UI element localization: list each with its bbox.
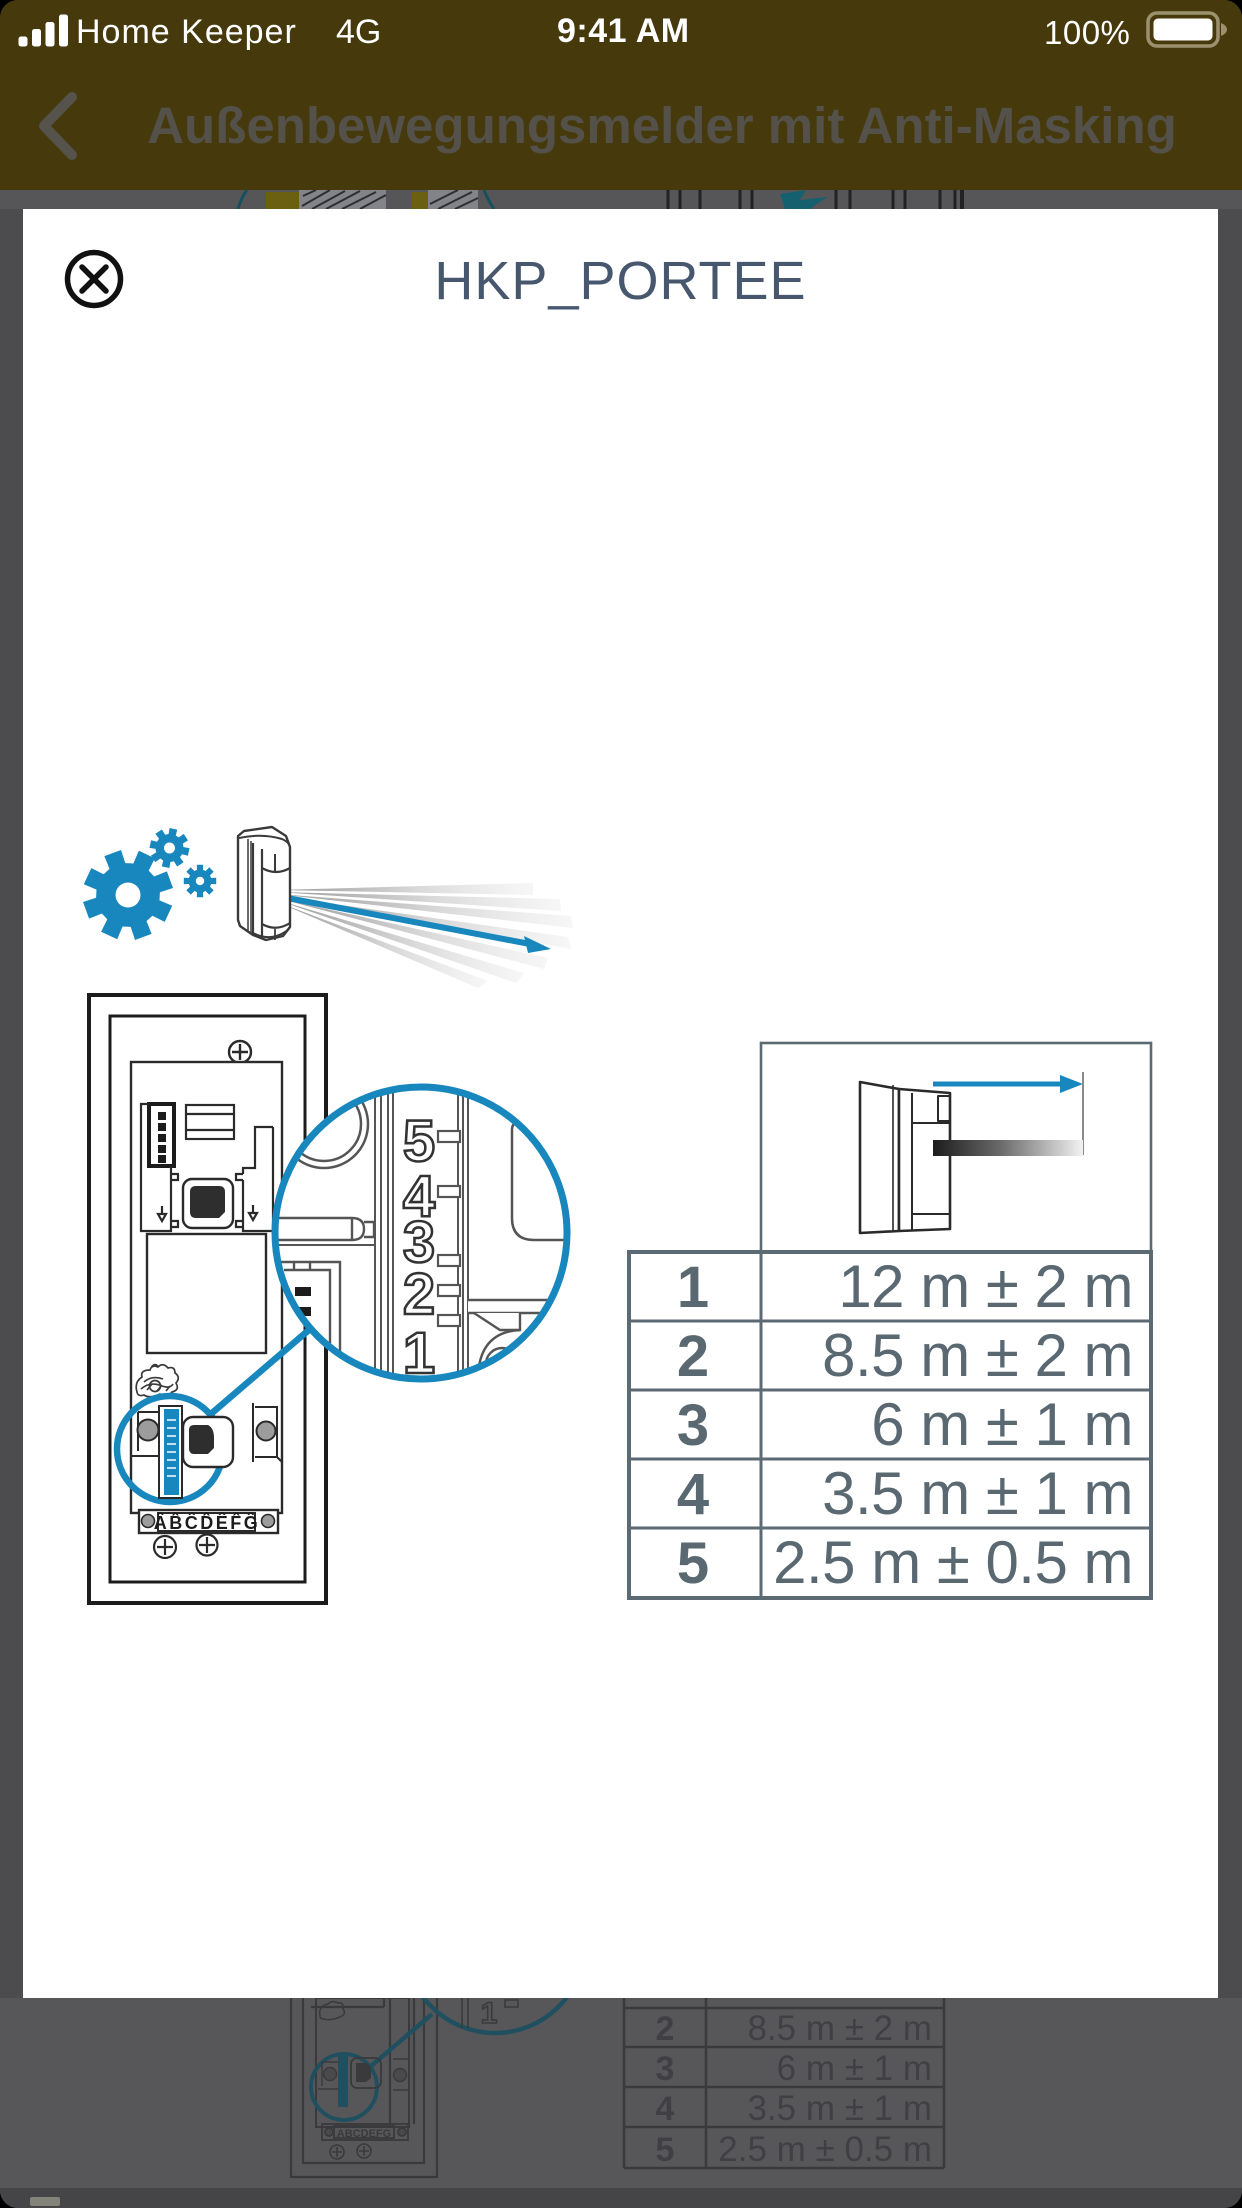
svg-text:3: 3 (656, 2050, 675, 2088)
svg-text:2: 2 (656, 2010, 675, 2048)
svg-text:4: 4 (677, 1462, 709, 1527)
svg-text:1: 1 (481, 1998, 498, 2030)
svg-text:5: 5 (677, 1531, 709, 1596)
svg-text:3.5 m ± 1 m: 3.5 m ± 1 m (822, 1460, 1133, 1527)
svg-text:1: 1 (677, 1255, 709, 1320)
svg-text:2: 2 (403, 1262, 435, 1327)
svg-text:ÂB̂ĈD̂ÊF̂Ĝ: ÂB̂ĈD̂ÊF̂Ĝ (154, 1512, 261, 1533)
svg-text:3: 3 (677, 1393, 709, 1458)
svg-text:6 m ± 1 m: 6 m ± 1 m (777, 2049, 932, 2088)
svg-text:6 m ± 1 m: 6 m ± 1 m (871, 1391, 1133, 1458)
svg-text:ABCDEFG: ABCDEFG (337, 2128, 391, 2140)
svg-text:3.5 m ± 1 m: 3.5 m ± 1 m (747, 2089, 932, 2128)
svg-text:2: 2 (677, 1324, 709, 1389)
svg-text:5: 5 (656, 2131, 675, 2169)
svg-text:12 m ± 2 m: 12 m ± 2 m (838, 1253, 1133, 1320)
svg-text:2.5 m ± 0.5 m: 2.5 m ± 0.5 m (718, 2130, 932, 2169)
svg-text:4: 4 (656, 2090, 675, 2128)
svg-text:8.5 m ± 2 m: 8.5 m ± 2 m (747, 2009, 932, 2048)
svg-text:2.5 m ± 0.5 m: 2.5 m ± 0.5 m (773, 1529, 1133, 1596)
svg-text:8.5 m ± 2 m: 8.5 m ± 2 m (822, 1322, 1133, 1389)
